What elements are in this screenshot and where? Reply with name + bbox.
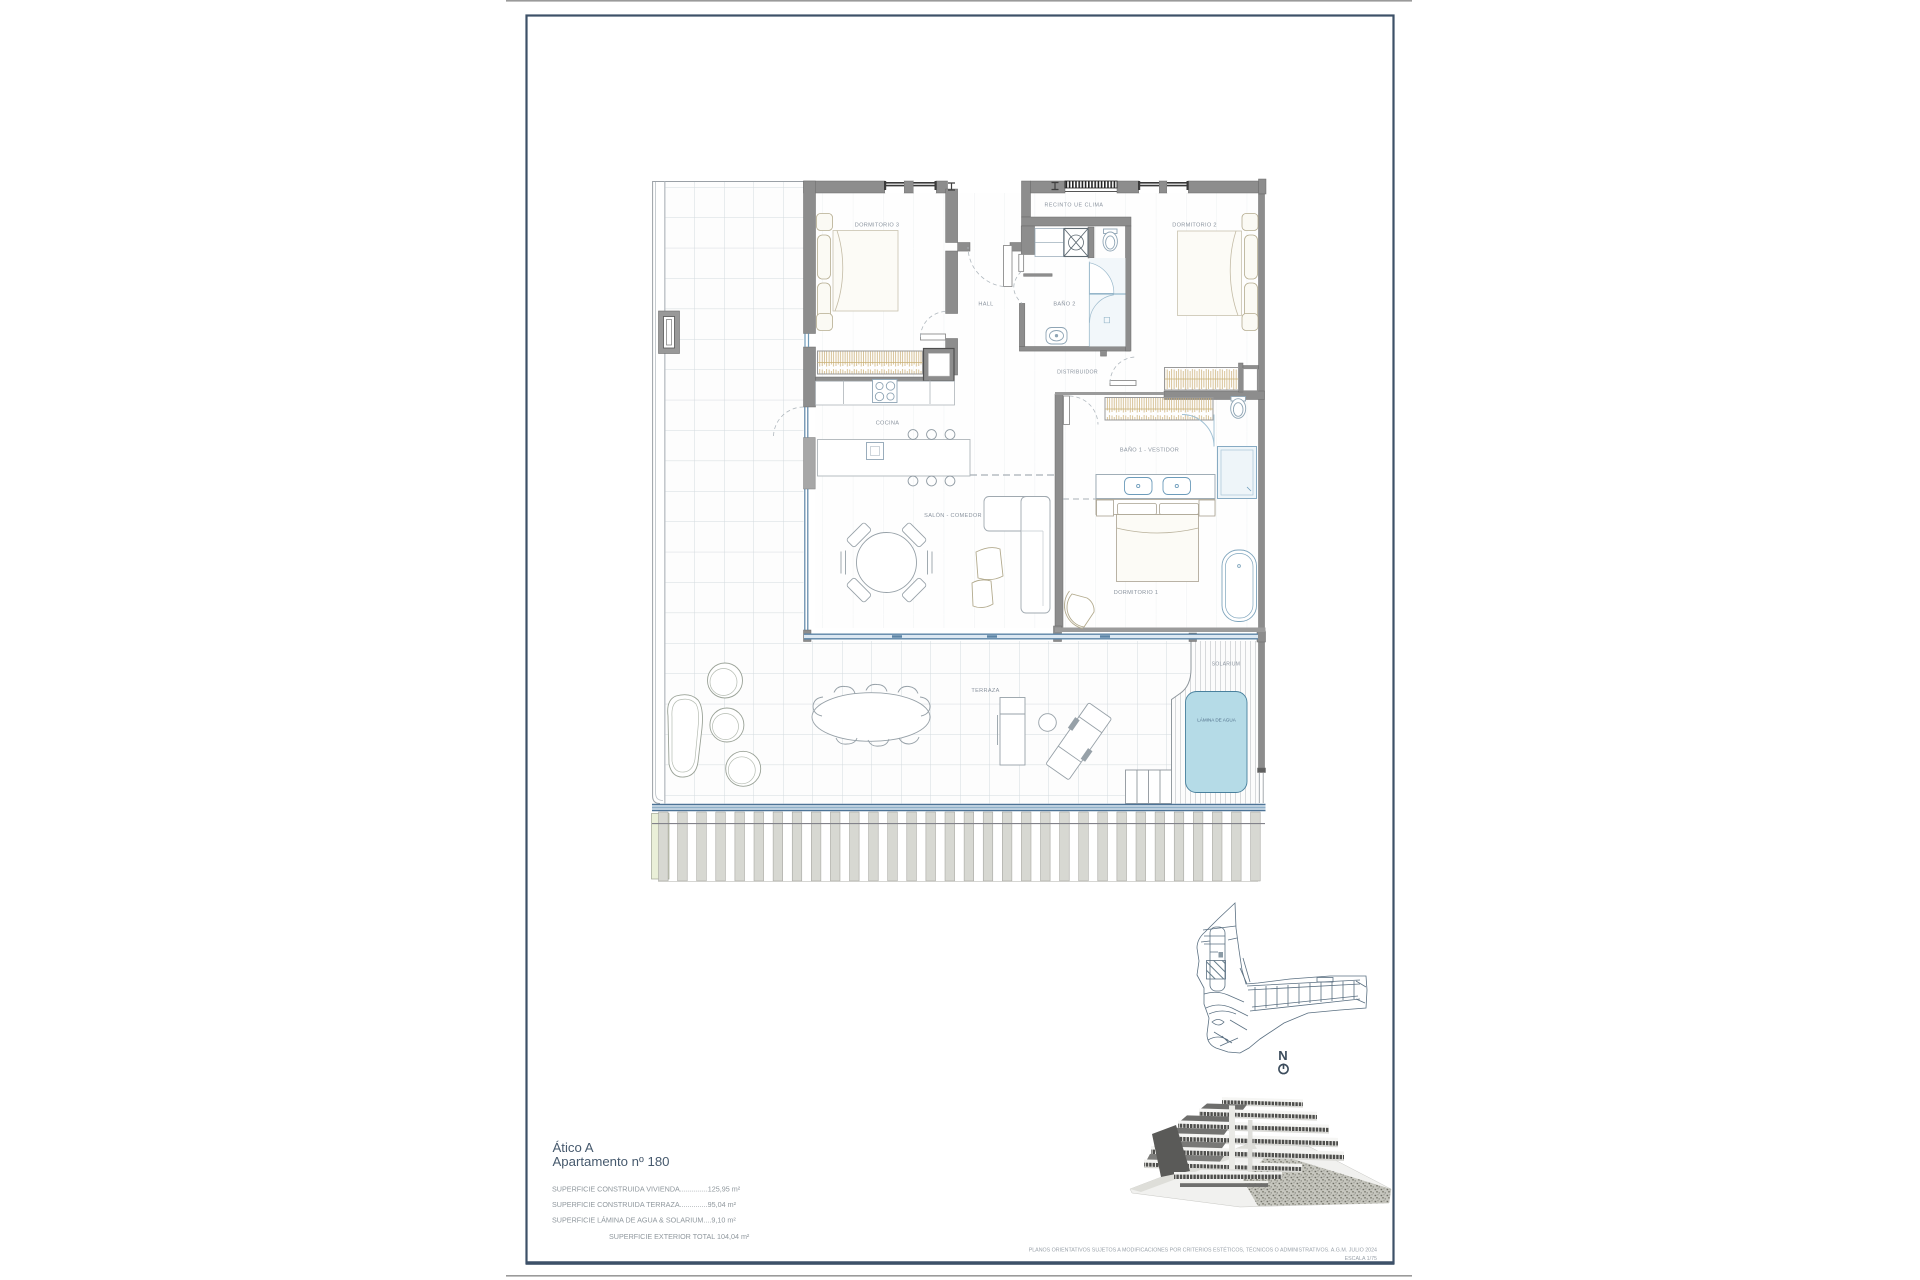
svg-text:TERRAZA: TERRAZA	[971, 688, 999, 694]
svg-text:PLANOS ORIENTATIVOS SUJETOS A: PLANOS ORIENTATIVOS SUJETOS A MODIFICACI…	[1029, 1247, 1377, 1254]
svg-text:SUPERFICIE CONSTRUIDA TERRAZA.: SUPERFICIE CONSTRUIDA TERRAZA...........…	[552, 1200, 737, 1209]
svg-text:RECINTO UE CLIMA: RECINTO UE CLIMA	[1044, 203, 1103, 209]
svg-text:HALL: HALL	[978, 302, 993, 308]
svg-text:LÁMINA DE AGUA: LÁMINA DE AGUA	[1197, 717, 1236, 723]
svg-text:SUPERFICIE LÁMINA DE AGUA & SO: SUPERFICIE LÁMINA DE AGUA & SOLARIUM....…	[552, 1215, 736, 1224]
svg-text:SUPERFICIE EXTERIOR TOTAL 104,: SUPERFICIE EXTERIOR TOTAL 104,04 m²	[609, 1232, 750, 1241]
svg-text:SUPERFICIE CONSTRUIDA VIVIENDA: SUPERFICIE CONSTRUIDA VIVIENDA..........…	[552, 1184, 741, 1193]
svg-text:DORMITORIO 3: DORMITORIO 3	[855, 223, 900, 229]
svg-text:Ático A: Ático A	[553, 1140, 594, 1155]
svg-text:ESCALA 1/75: ESCALA 1/75	[1345, 1256, 1377, 1262]
svg-text:DORMITORIO 1: DORMITORIO 1	[1114, 590, 1159, 596]
svg-text:BAÑO 2: BAÑO 2	[1053, 301, 1075, 308]
svg-text:DISTRIBUIDOR: DISTRIBUIDOR	[1057, 370, 1098, 376]
svg-text:DORMITORIO 2: DORMITORIO 2	[1172, 223, 1217, 229]
svg-text:SALÓN - COMEDOR: SALÓN - COMEDOR	[924, 512, 982, 519]
svg-text:Apartamento nº 180: Apartamento nº 180	[553, 1154, 670, 1169]
svg-text:BAÑO 1 - VESTIDOR: BAÑO 1 - VESTIDOR	[1120, 447, 1179, 454]
svg-text:N: N	[1278, 1048, 1287, 1063]
svg-text:COCINA: COCINA	[876, 421, 900, 427]
svg-text:SOLARIUM: SOLARIUM	[1212, 662, 1241, 668]
